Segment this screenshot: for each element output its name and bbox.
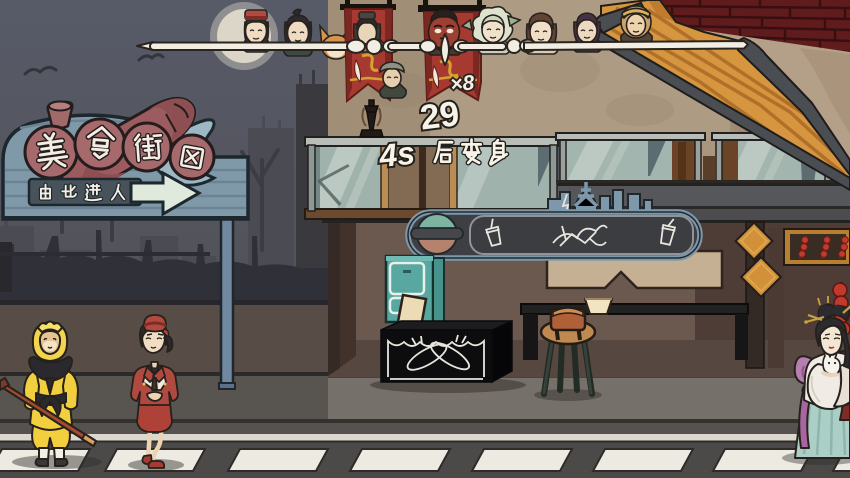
svg-text:×8: ×8 — [449, 71, 475, 96]
svg-text:29: 29 — [418, 94, 461, 137]
svg-text:4s: 4s — [376, 135, 416, 175]
